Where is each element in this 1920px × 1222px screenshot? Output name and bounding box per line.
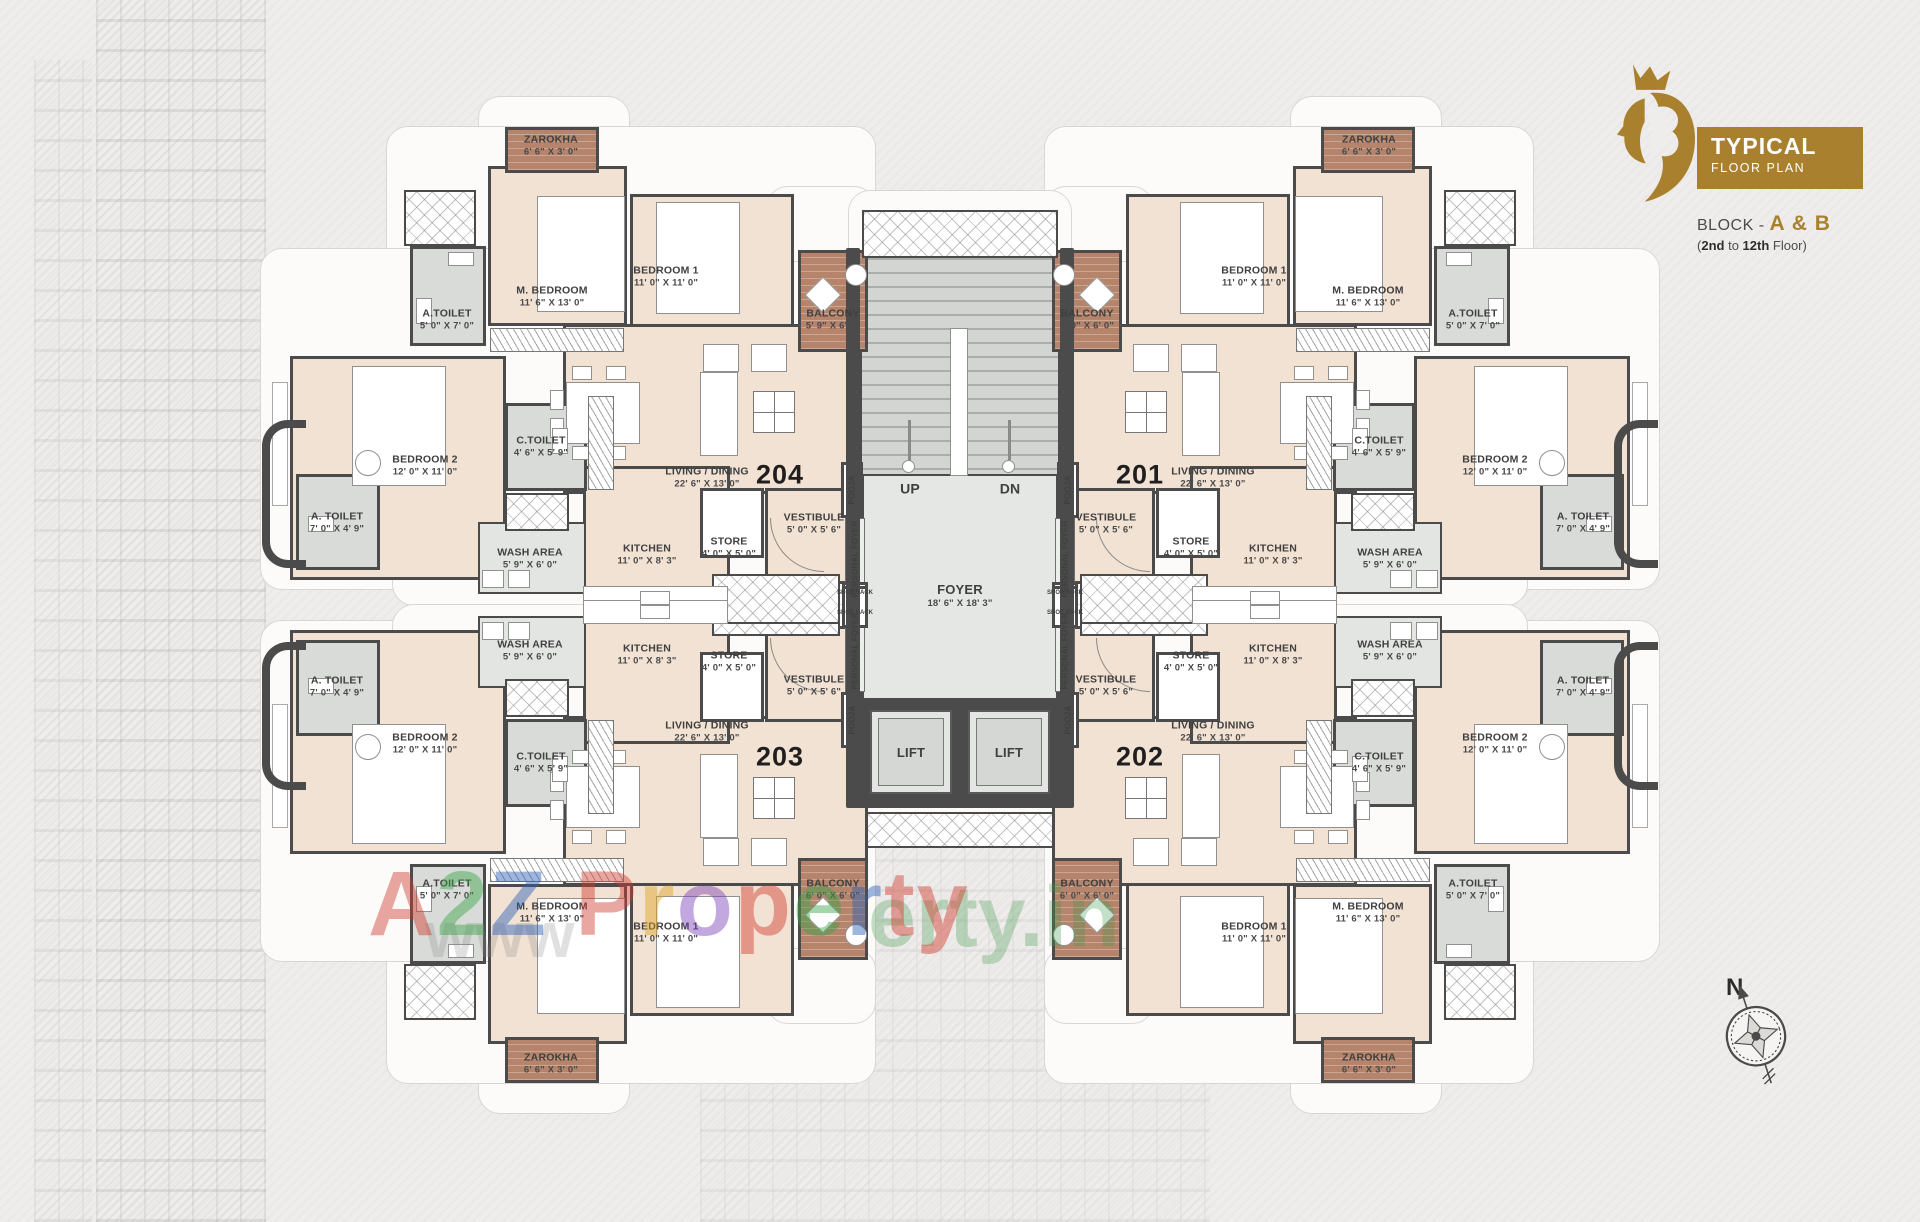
sofa [700, 754, 738, 838]
room-label-living-dining: LIVING / DINING22' 6" X 13' 0" [665, 720, 749, 745]
room-label-living-dining: LIVING / DINING22' 6" X 13' 0" [1171, 720, 1255, 745]
center-table [1125, 391, 1167, 433]
side-table [355, 450, 381, 476]
room-label-wash-area: WASH AREA5' 9" X 6' 0" [1357, 639, 1423, 664]
center-table [1125, 777, 1167, 819]
shaft [1351, 493, 1415, 531]
unit-number-202: 202 [1116, 742, 1164, 773]
foyer-label: FOYER18' 6" X 18' 3" [927, 582, 992, 610]
wardrobe [588, 396, 614, 490]
chair [1328, 830, 1348, 844]
balcony-table [845, 924, 867, 946]
balcony-table [1053, 264, 1075, 286]
room-label-m-bedroom: M. BEDROOM11' 6" X 13' 0" [1332, 285, 1403, 310]
room-label-a-toilet: A. TOILET7' 0" X 4' 9" [1555, 675, 1611, 700]
shaft [505, 493, 569, 531]
sofa [1182, 754, 1220, 838]
room-label-bedroom-2: BEDROOM 212' 0" X 11' 0" [1462, 454, 1527, 479]
corner-wall [262, 642, 306, 790]
washer [1390, 622, 1412, 640]
duct [1080, 574, 1208, 624]
room-label-a-toilet: A.TOILET5' 0" X 7' 0" [420, 878, 474, 903]
room-label-kitchen: KITCHEN11' 0" X 8' 3" [617, 643, 676, 668]
core-base [866, 812, 1054, 848]
washer [1416, 622, 1438, 640]
lift-label: LIFT [995, 745, 1023, 761]
sofa [700, 372, 738, 456]
shoe-rack-label: SHOE RACK [837, 610, 873, 616]
room-label-kitchen: KITCHEN11' 0" X 8' 3" [617, 543, 676, 568]
center-table [753, 777, 795, 819]
lift-label: LIFT [897, 745, 925, 761]
room-label-store: STORE4' 0" X 5' 0" [1164, 536, 1218, 561]
personal-foyer-label: PERSONAL FOYER [1061, 613, 1070, 690]
room-label-bedroom-1: BEDROOM 111' 0" X 11' 0" [1221, 921, 1286, 946]
washer [1390, 570, 1412, 588]
wardrobe [1306, 396, 1332, 490]
shaft [505, 679, 569, 717]
wardrobe [1306, 720, 1332, 814]
room-label-vestibule: VESTIBULE5' 0" X 5' 6" [1076, 674, 1137, 699]
side-table [1539, 450, 1565, 476]
room-label-balcony: BALCONY5' 9" X 6' 0" [806, 308, 860, 333]
room-label-c-toilet: C.TOILET4' 6" X 5' 9" [1352, 751, 1406, 776]
room-label-a-toilet: A. TOILET7' 0" X 4' 9" [1555, 511, 1611, 536]
room-label-a-toilet: A.TOILET5' 0" X 7' 0" [420, 308, 474, 333]
shower [1444, 964, 1516, 1020]
room-label-wash-area: WASH AREA5' 9" X 6' 0" [1357, 547, 1423, 572]
shower [404, 964, 476, 1020]
stairs-up-label: UP [900, 480, 920, 498]
room-label-vestibule: VESTIBULE5' 0" X 5' 6" [1076, 512, 1137, 537]
page-title: TYPICAL [1711, 135, 1863, 158]
wardrobe [588, 720, 614, 814]
room-label-bedroom-2: BEDROOM 212' 0" X 11' 0" [392, 454, 457, 479]
room-label-living-dining: LIVING / DINING22' 6" X 13' 0" [665, 466, 749, 491]
title-banner: TYPICAL FLOOR PLAN [1697, 127, 1863, 189]
basin [448, 944, 474, 958]
shower [1444, 190, 1516, 246]
bed [1180, 202, 1264, 314]
personal-foyer-label: PERSONAL FOYER [1061, 521, 1070, 598]
personal-foyer-label: PERSONAL FOYER [851, 521, 860, 598]
chair [572, 830, 592, 844]
chair [1294, 830, 1314, 844]
corner-wall [262, 420, 306, 568]
chair [606, 366, 626, 380]
block-value: A & B [1769, 212, 1830, 235]
stair-node [902, 460, 915, 473]
bed [1180, 896, 1264, 1008]
corner-wall [1614, 420, 1658, 568]
shower [404, 190, 476, 246]
compass-icon [1700, 978, 1812, 1090]
wardrobe [1296, 328, 1430, 352]
armchair [1133, 838, 1169, 866]
basin [1446, 252, 1472, 266]
room-label-vestibule: VESTIBULE5' 0" X 5' 6" [784, 512, 845, 537]
room-label-a-toilet: A.TOILET5' 0" X 7' 0" [1446, 878, 1500, 903]
room-label-kitchen: KITCHEN11' 0" X 8' 3" [1243, 543, 1302, 568]
room-label-vestibule: VESTIBULE5' 0" X 5' 6" [784, 674, 845, 699]
floor-range: (2nd to 12th Floor) [1697, 238, 1897, 253]
chair [550, 800, 564, 820]
room-label-zarokha: ZAROKHA6' 6" X 3' 0" [1342, 1052, 1396, 1077]
room-label-m-bedroom: M. BEDROOM11' 6" X 13' 0" [516, 285, 587, 310]
chair [1356, 390, 1370, 410]
armchair [1181, 344, 1217, 372]
shoe-rack-label: SHOE RACK [1047, 590, 1083, 596]
stove [640, 591, 670, 605]
chair [550, 390, 564, 410]
wardrobe [490, 328, 624, 352]
room-label-kitchen: KITCHEN11' 0" X 8' 3" [1243, 643, 1302, 668]
room-label-wash-area: WASH AREA5' 9" X 6' 0" [497, 547, 563, 572]
room-label-wash-area: WASH AREA5' 9" X 6' 0" [497, 639, 563, 664]
room-label-store: STORE4' 0" X 5' 0" [702, 650, 756, 675]
room-label-store: STORE4' 0" X 5' 0" [1164, 650, 1218, 675]
armchair [1181, 838, 1217, 866]
duct [712, 574, 840, 624]
stair-landing [950, 328, 968, 476]
sofa [1182, 372, 1220, 456]
wardrobe [490, 858, 624, 882]
chair [572, 366, 592, 380]
room-label-c-toilet: C.TOILET4' 6" X 5' 9" [514, 751, 568, 776]
room-label-store: STORE4' 0" X 5' 0" [702, 536, 756, 561]
bed [656, 202, 740, 314]
washer [482, 622, 504, 640]
unit-number-201: 201 [1116, 460, 1164, 491]
room-label-a-toilet: A. TOILET7' 0" X 4' 9" [309, 675, 365, 700]
room-label-m-bedroom: M. BEDROOM11' 6" X 13' 0" [1332, 901, 1403, 926]
pooja-label: POOJA [848, 705, 857, 734]
room-label-a-toilet: A. TOILET7' 0" X 4' 9" [309, 511, 365, 536]
corner-wall [1614, 642, 1658, 790]
room-label-bedroom-1: BEDROOM 111' 0" X 11' 0" [633, 265, 698, 290]
stair-node [1002, 460, 1015, 473]
balcony-table [1053, 924, 1075, 946]
wardrobe [1296, 858, 1430, 882]
chair [606, 830, 626, 844]
room-label-balcony: BALCONY6' 0" X 6' 0" [1060, 878, 1114, 903]
side-table [1539, 734, 1565, 760]
chair [1356, 800, 1370, 820]
room-label-bedroom-1: BEDROOM 111' 0" X 11' 0" [633, 921, 698, 946]
armchair [703, 344, 739, 372]
unit-number-204: 204 [756, 460, 804, 491]
chair [1328, 366, 1348, 380]
basin [448, 252, 474, 266]
room-label-a-toilet: A.TOILET5' 0" X 7' 0" [1446, 308, 1500, 333]
armchair [703, 838, 739, 866]
washer [508, 570, 530, 588]
armchair [1133, 344, 1169, 372]
crown-icon [1633, 64, 1670, 90]
room-label-balcony: BALCONY6' 0" X 6' 0" [806, 878, 860, 903]
room-label-m-bedroom: M. BEDROOM11' 6" X 13' 0" [516, 901, 587, 926]
shoe-rack-label: SHOE RACK [1047, 610, 1083, 616]
bed [656, 896, 740, 1008]
balcony-table [845, 264, 867, 286]
pooja-label: POOJA [1064, 475, 1073, 504]
pooja-label: POOJA [848, 475, 857, 504]
washer [482, 570, 504, 588]
room-label-zarokha: ZAROKHA6' 6" X 3' 0" [524, 1052, 578, 1077]
stair-roof [862, 210, 1058, 258]
stove [1250, 605, 1280, 619]
room-label-bedroom-2: BEDROOM 212' 0" X 11' 0" [1462, 732, 1527, 757]
shoe-rack-label: SHOE RACK [837, 590, 873, 596]
room-label-c-toilet: C.TOILET4' 6" X 5' 9" [1352, 435, 1406, 460]
washer [508, 622, 530, 640]
basin [1446, 944, 1472, 958]
room-label-zarokha: ZAROKHA6' 6" X 3' 0" [524, 134, 578, 159]
room-label-balcony: BALCONY5' 9" X 6' 0" [1060, 308, 1114, 333]
block-label: BLOCK - A & B [1697, 212, 1877, 236]
unit-number-203: 203 [756, 742, 804, 773]
center-table [753, 391, 795, 433]
room-label-bedroom-2: BEDROOM 212' 0" X 11' 0" [392, 732, 457, 757]
chair [1294, 366, 1314, 380]
armchair [751, 838, 787, 866]
room-label-bedroom-1: BEDROOM 111' 0" X 11' 0" [1221, 265, 1286, 290]
room-label-c-toilet: C.TOILET4' 6" X 5' 9" [514, 435, 568, 460]
room-label-zarokha: ZAROKHA6' 6" X 3' 0" [1342, 134, 1396, 159]
personal-foyer-label: PERSONAL FOYER [851, 613, 860, 690]
shaft [1351, 679, 1415, 717]
armchair [751, 344, 787, 372]
side-table [355, 734, 381, 760]
stove [1250, 591, 1280, 605]
stove [640, 605, 670, 619]
room-label-living-dining: LIVING / DINING22' 6" X 13' 0" [1171, 466, 1255, 491]
washer [1416, 570, 1438, 588]
lion-logo [1585, 60, 1715, 220]
pooja-label: POOJA [1064, 705, 1073, 734]
stairs-down-label: DN [1000, 480, 1021, 498]
page-subtitle: FLOOR PLAN [1711, 161, 1863, 175]
